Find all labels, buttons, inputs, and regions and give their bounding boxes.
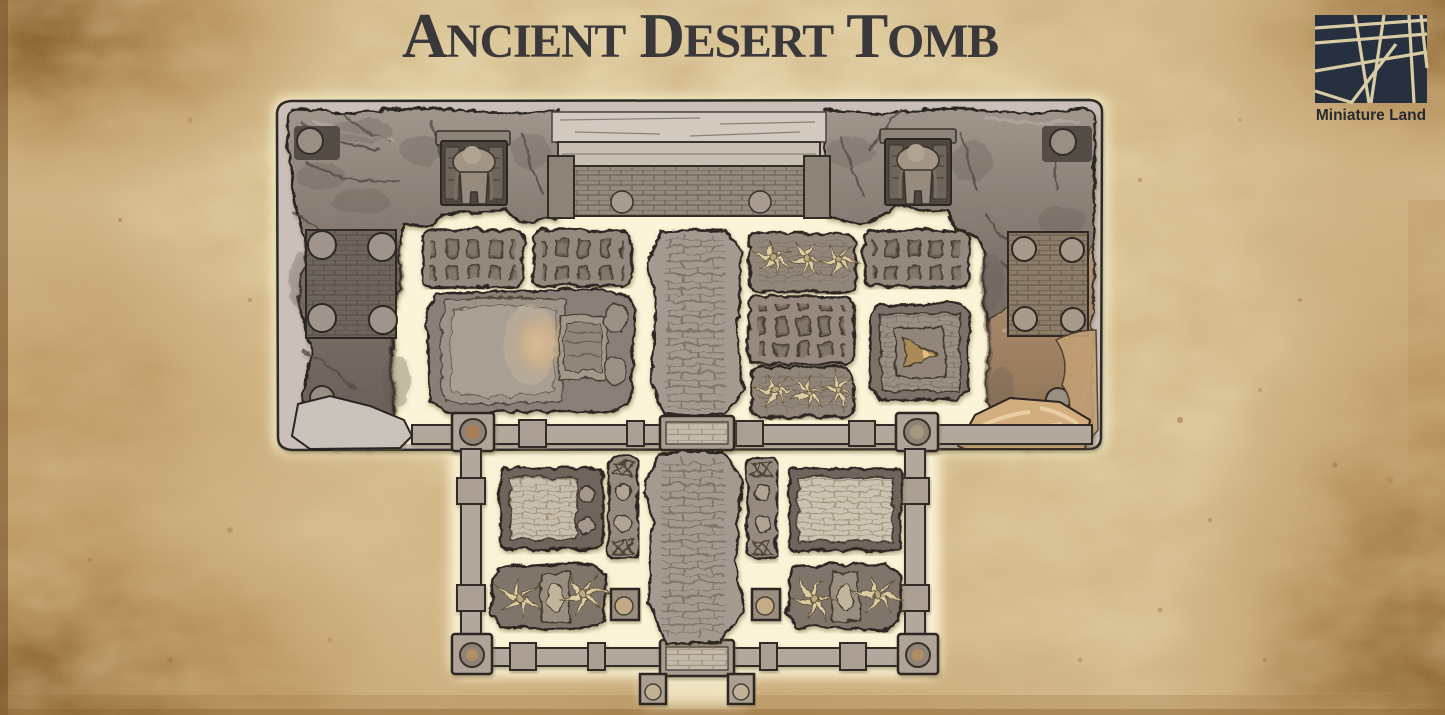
svg-text:Miniature Land: Miniature Land [1316,107,1426,124]
